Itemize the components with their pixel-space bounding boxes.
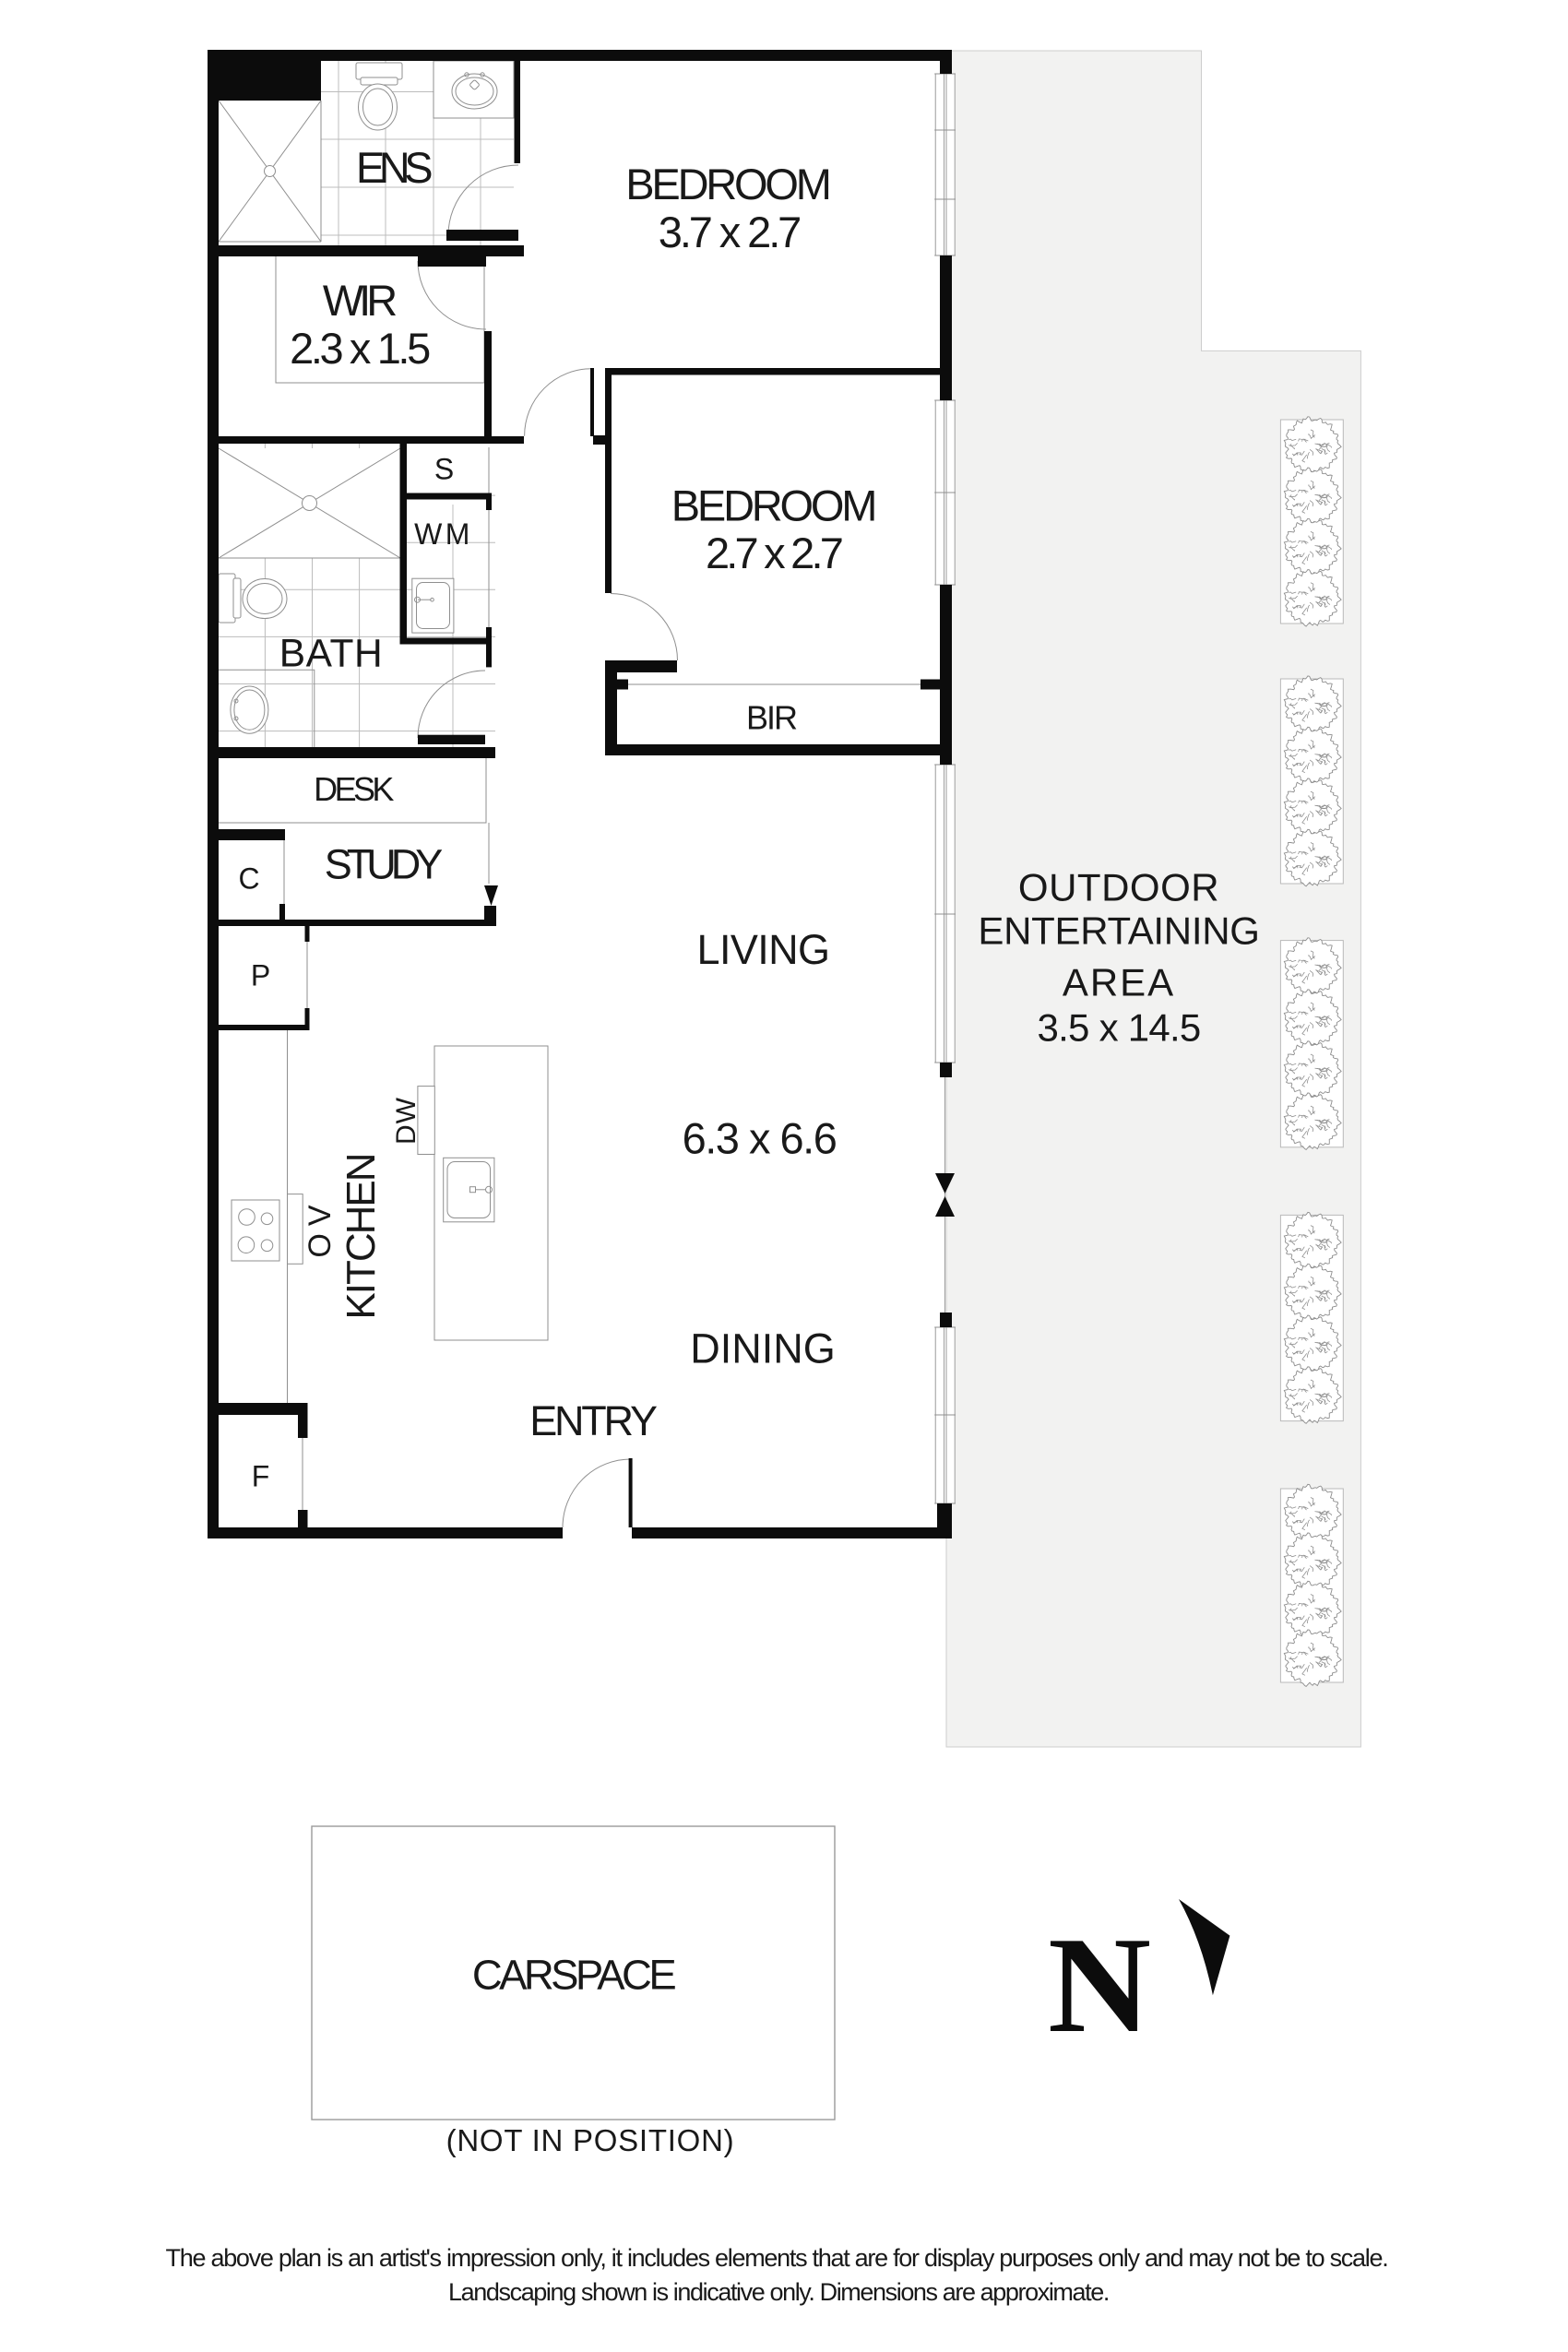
svg-text:BATH: BATH: [279, 633, 384, 676]
svg-text:ENTRY: ENTRY: [529, 1397, 658, 1444]
svg-text:P: P: [251, 959, 270, 992]
svg-text:CARSPACE: CARSPACE: [472, 1952, 675, 1999]
svg-text:3.7 x 2.7: 3.7 x 2.7: [659, 208, 800, 256]
svg-text:BEDROOM: BEDROOM: [671, 481, 874, 530]
svg-text:3.5 x 14.5: 3.5 x 14.5: [1038, 1006, 1201, 1050]
svg-text:(NOT IN POSITION): (NOT IN POSITION): [446, 2123, 735, 2157]
svg-text:Landscaping shown is indicativ: Landscaping shown is indicative only. Di…: [448, 2278, 1109, 2306]
svg-text:STUDY: STUDY: [325, 840, 443, 887]
svg-text:ENS: ENS: [356, 143, 432, 192]
svg-text:S: S: [434, 453, 454, 486]
svg-text:LIVING: LIVING: [697, 926, 830, 973]
svg-text:F: F: [252, 1460, 270, 1493]
svg-text:ENTERTAINING: ENTERTAINING: [978, 909, 1259, 953]
svg-text:DINING: DINING: [690, 1324, 836, 1372]
svg-text:AREA: AREA: [1063, 960, 1175, 1004]
svg-text:DESK: DESK: [314, 770, 394, 808]
svg-text:2.7 x 2.7: 2.7 x 2.7: [706, 529, 842, 577]
svg-text:KITCHEN: KITCHEN: [339, 1154, 384, 1319]
svg-text:2.3 x 1.5: 2.3 x 1.5: [290, 324, 430, 373]
svg-text:The above plan is an artist's: The above plan is an artist's impression…: [166, 2244, 1388, 2272]
svg-text:BEDROOM: BEDROOM: [625, 160, 828, 208]
svg-text:WIR: WIR: [323, 276, 396, 325]
svg-text:OV: OV: [303, 1197, 338, 1257]
svg-text:C: C: [238, 862, 259, 896]
svg-text:BIR: BIR: [746, 699, 797, 737]
svg-text:6.3 x 6.6: 6.3 x 6.6: [683, 1114, 837, 1163]
svg-text:N: N: [1048, 1909, 1151, 2061]
svg-text:WM: WM: [414, 517, 473, 551]
svg-text:DW: DW: [391, 1097, 422, 1145]
svg-text:OUTDOOR: OUTDOOR: [1018, 866, 1219, 909]
